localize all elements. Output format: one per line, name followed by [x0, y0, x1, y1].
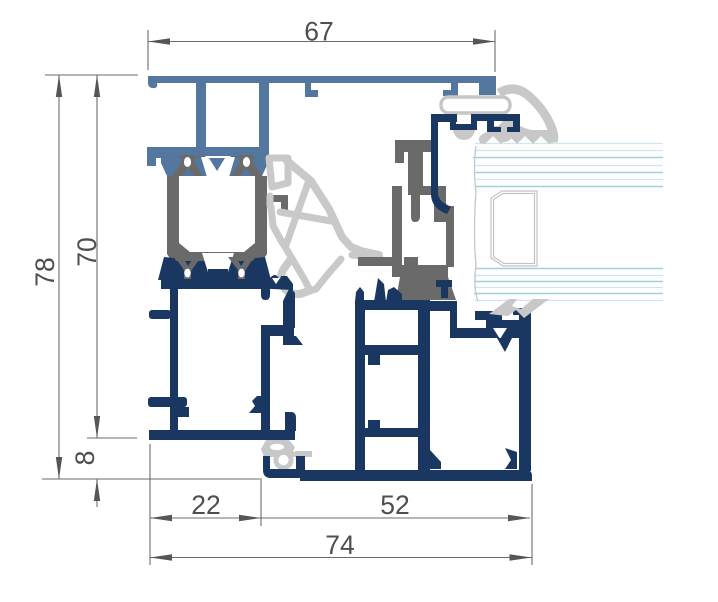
svg-text:70: 70 [72, 237, 102, 266]
svg-text:22: 22 [191, 490, 220, 520]
svg-text:67: 67 [304, 17, 333, 47]
svg-text:52: 52 [380, 490, 409, 520]
svg-text:74: 74 [325, 530, 354, 560]
svg-text:78: 78 [30, 257, 60, 286]
svg-text:8: 8 [70, 451, 100, 466]
